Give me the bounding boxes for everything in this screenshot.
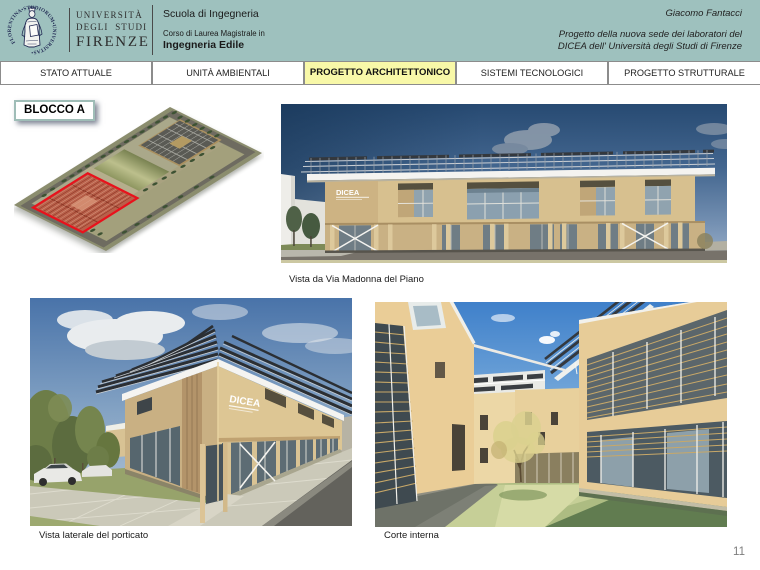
svg-text:DICEA: DICEA <box>336 188 360 197</box>
